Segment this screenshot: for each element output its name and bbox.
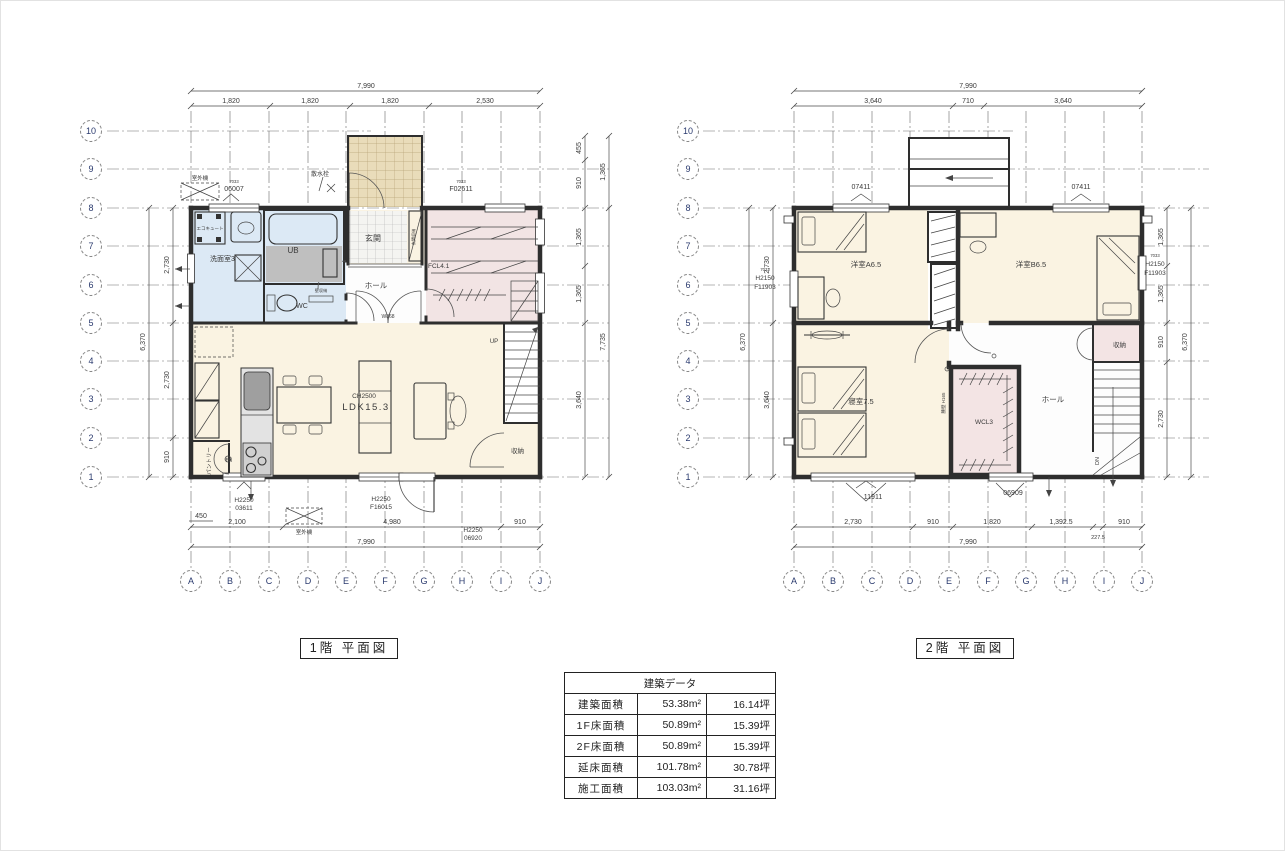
win-07411-b: 07411 [1072,184,1091,191]
dim-bottom-total-2f: 7,990 [959,539,977,546]
dim-left-3: 910 [164,451,171,463]
row-tsubo: 16.14坪 [707,694,776,715]
col-bubble: A [188,576,194,586]
outdoor-unit-bottom [286,508,322,524]
col-bubble: E [946,576,952,586]
col-bubble: A [791,576,797,586]
floor-plan-1f: 7,990 1,820 1,820 1,820 2,530 2,100 4,98… [61,71,661,591]
row-m2: 53.38m² [638,694,707,715]
col-bubble: C [869,576,876,586]
floor-plan-2f: 7,990 3,640 710 3,640 2,730 910 1,820 1,… [661,71,1261,591]
row-bubble: 2 [88,433,93,443]
row-bubble: 7 [88,241,93,251]
dim-left-1: 2,730 [164,256,171,274]
outdoor-unit-top [181,183,219,200]
balcony [909,138,1009,208]
win-h2250-b1: H2250 [371,496,391,503]
win-h2250-c1: H2250 [463,527,483,534]
label-yoshitsu-b: 洋室B6.5 [1016,259,1046,269]
sansui-symbol [319,177,335,192]
win-code-7033-b: 7033 [456,179,466,184]
col-bubble: I [500,576,503,586]
table-row: 施工面積 103.03m² 31.16坪 [565,778,776,799]
row-bubble: 1 [88,472,93,482]
col-bubble: I [1103,576,1106,586]
dim-right-455: 455 [576,142,583,154]
dim-bottom-3: 910 [514,519,526,526]
row-m2: 101.78m² [638,757,707,778]
dim2-bottom-5: 910 [1118,519,1130,526]
roof-arrow [1046,477,1052,497]
label-hall-2f: ホール [1042,395,1065,404]
label-gaiki-top: 室外機 [192,174,209,182]
row-bubble: 8 [685,203,690,213]
row-bubble: 1 [685,472,690,482]
dim2-bottom-2: 910 [927,519,939,526]
dim2-2275: 227.5 [1091,535,1105,541]
table-title-row: 建築データ [565,673,776,694]
row-m2: 50.89m² [638,736,707,757]
row-bubble: 7 [685,241,690,251]
row-bubble: 5 [88,318,93,328]
win-06909: 06909 [1003,490,1023,497]
dim2-right-3: 910 [1158,336,1165,348]
dim2-right-2: 1,365 [1158,285,1165,303]
win-f02611: F02611 [449,186,472,193]
dim-450: 450 [195,513,207,520]
stairs-1f-bg [504,323,538,423]
row-bubble: 9 [685,164,690,174]
dim2-top-3: 3,640 [1054,98,1072,105]
win-h2250-b2: F16015 [370,504,392,511]
dim-top-total-2f: 7,990 [959,83,977,90]
win-h2150-r2: F11903 [1144,270,1166,277]
row-m2: 50.89m² [638,715,707,736]
table-row: 建築面積 53.38m² 16.14坪 [565,694,776,715]
row-tsubo: 31.16坪 [707,778,776,799]
dim-right-1: 1,365 [576,228,583,246]
label-up: UP [490,339,498,345]
row-bubble: 4 [685,356,690,366]
win-h2150-l1: H2150 [755,275,775,282]
dim2-right-4: 2,730 [1158,410,1165,428]
win-h2250-a2: 03611 [235,505,253,512]
col-bubble: F [382,576,388,586]
win-code-right: 7033 [1150,253,1160,258]
col-bubble: H [459,576,466,586]
row-m2: 103.03m² [638,778,707,799]
win-06007: 06007 [224,186,244,193]
dim-right-1365-outer: 1,365 [600,163,607,181]
label-senmen: 洗面室3 [210,254,235,263]
dim2-bottom-1: 2,730 [844,519,862,526]
col-bubble: B [227,576,233,586]
plan2f-title: 2階 平面図 [916,638,1014,659]
dim-top-total-1f: 7,990 [357,83,375,90]
label-shinshitsu: 寝室7.5 [848,396,873,406]
row-label: 2F床面積 [565,736,638,757]
label-fcl: FCL4.1 [428,263,450,270]
kitchen-sink [244,372,270,410]
row-bubble: 10 [683,126,693,136]
col-bubble: E [343,576,349,586]
col-bubble: H [1062,576,1069,586]
label-yoshitsu-a: 洋室A6.5 [851,259,881,269]
row-tsubo: 15.39坪 [707,715,776,736]
label-dn: DN [1095,457,1101,465]
plan2f-title-text: 2階 平面図 [926,641,1004,655]
label-hall-1f: ホール [365,281,388,290]
label-kabe-shuno: 壁収納 [315,287,328,294]
plan1f-title-text: 1階 平面図 [310,641,388,655]
col-bubble: D [305,576,312,586]
dim-bottom-1: 2,100 [228,519,246,526]
dim-left-total: 6,370 [140,333,147,351]
row-bubble: 3 [88,394,93,404]
label-ih: IH [226,458,232,464]
drawing-canvas: 7,990 1,820 1,820 1,820 2,530 2,100 4,98… [0,0,1285,851]
col-bubble: D [907,576,914,586]
win-h2150-r1: H2150 [1145,261,1165,268]
col-bubble: G [1022,576,1029,586]
row-tsubo: 15.39坪 [707,736,776,757]
dim2-bottom-4: 1,392.5 [1049,519,1072,526]
dim-top-2: 1,820 [301,98,319,105]
dim-left-2: 2,730 [164,371,171,389]
label-wc: WC [296,303,308,310]
label-sansui: 散水栓 [311,170,329,178]
win-h2250-a1: H2250 [234,497,254,504]
dim2-bottom-3: 1,820 [983,519,1001,526]
col-bubble: F [985,576,991,586]
dim2-top-1: 3,640 [864,98,882,105]
table-row: 延床面積 101.78m² 30.78坪 [565,757,776,778]
win-code-left: 7033 [760,267,770,272]
table-row: 1F床面積 50.89m² 15.39坪 [565,715,776,736]
label-ecocute: エコキュート [197,226,224,231]
col-bubble: J [1140,576,1145,586]
label-ldk: LDK15.3 [342,402,389,413]
dim-right-2: 1,365 [576,285,583,303]
table-row: 2F床面積 50.89m² 15.39坪 [565,736,776,757]
dim-top-3: 1,820 [381,98,399,105]
dim-right-910: 910 [576,177,583,189]
building-data-table: 建築データ 建築面積 53.38m² 16.14坪 1F床面積 50.89m² … [564,672,776,799]
dim2-left-total: 6,370 [740,333,747,351]
row-bubble: 8 [88,203,93,213]
dim-right-total: 7,735 [600,333,607,351]
win-07411-a: 07411 [852,184,871,191]
dim-top-4: 2,530 [476,98,494,105]
col-bubble: J [538,576,543,586]
win-11911: 11911 [864,494,883,501]
row-bubble: 2 [685,433,690,443]
label-gaiki-bottom: 室外機 [296,528,313,536]
dim2-right-1: 1,365 [1158,228,1165,246]
table-title: 建築データ [565,673,776,694]
win-h2150-l2: F11903 [754,284,776,291]
row-label: 施工面積 [565,778,638,799]
row-bubble: 10 [86,126,96,136]
label-w868: W868 [381,314,394,320]
dim-right-3: 3,640 [576,391,583,409]
row-label: 建築面積 [565,694,638,715]
label-genkan-shuno: 玄関収納 [410,229,417,246]
dim2-top-2: 710 [962,98,974,105]
dim-bottom-2: 4,980 [383,519,401,526]
plan1f-title: 1階 平面図 [300,638,398,659]
win-code-7033-a: 7033 [229,179,239,184]
label-genkan: 玄関 [365,233,381,243]
row-bubble: 4 [88,356,93,366]
col-bubble: G [420,576,427,586]
dim-bottom-total-1f: 7,990 [357,539,375,546]
label-shuno-2f: 収納 [1113,340,1126,349]
row-tsubo: 30.78坪 [707,757,776,778]
row-bubble: 3 [685,394,690,404]
row-bubble: 5 [685,318,690,328]
row-bubble: 6 [685,280,690,290]
dim2-left-2: 3,640 [764,391,771,409]
col-bubble: B [830,576,836,586]
entry-porch-tiles [349,137,421,207]
label-koshikabe: 腰壁 H165 [940,392,947,414]
label-pantry: パントリー [206,447,213,475]
row-bubble: 9 [88,164,93,174]
label-ub: UB [287,246,298,255]
label-wcl: WCL3 [975,419,993,426]
label-ch2500: CH2500 [352,393,376,400]
dim-top-1: 1,820 [222,98,240,105]
label-shuno-1f: 収納 [511,446,524,455]
col-bubble: C [266,576,273,586]
win-h2250-c2: 06920 [464,535,482,542]
dim2-right-total: 6,370 [1182,333,1189,351]
row-label: 1F床面積 [565,715,638,736]
row-label: 延床面積 [565,757,638,778]
row-bubble: 6 [88,280,93,290]
